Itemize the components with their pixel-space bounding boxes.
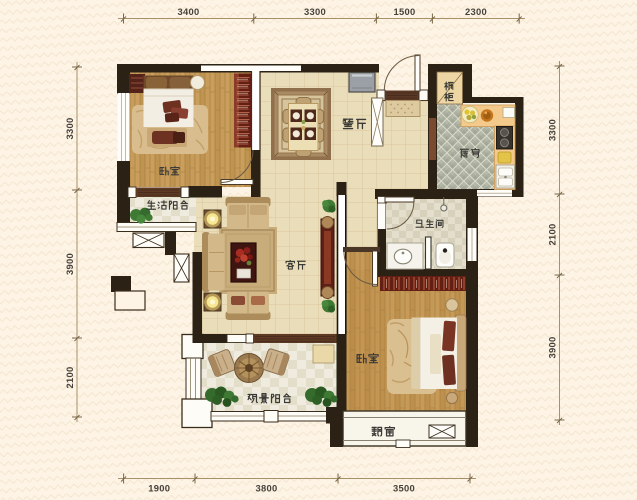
svg-text:3800: 3800: [255, 483, 277, 494]
svg-text:3300: 3300: [64, 117, 75, 139]
svg-text:3500: 3500: [393, 483, 415, 494]
svg-text:3300: 3300: [547, 119, 558, 141]
svg-text:2300: 2300: [465, 6, 487, 17]
svg-text:1500: 1500: [393, 6, 415, 17]
svg-text:2100: 2100: [547, 223, 558, 245]
svg-text:2100: 2100: [64, 366, 75, 388]
svg-text:1900: 1900: [148, 483, 170, 494]
svg-text:3900: 3900: [64, 253, 75, 275]
svg-text:3300: 3300: [304, 6, 326, 17]
svg-text:3900: 3900: [547, 336, 558, 358]
svg-text:3400: 3400: [177, 6, 199, 17]
